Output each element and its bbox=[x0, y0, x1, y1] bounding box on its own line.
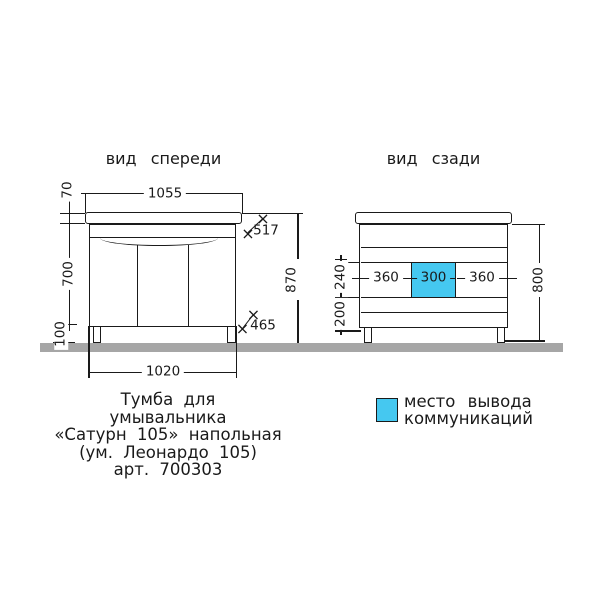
front-door-seam-right bbox=[188, 245, 189, 327]
dim-outlet-upper: 240 bbox=[334, 261, 348, 293]
caption-line5: арт. 700303 bbox=[35, 461, 301, 479]
legend-swatch bbox=[376, 398, 398, 422]
extension-line bbox=[242, 193, 243, 213]
back-countertop bbox=[355, 212, 512, 224]
back-panel-line bbox=[361, 247, 507, 248]
extension-line bbox=[242, 213, 303, 214]
front-view-title: вид спереди bbox=[85, 149, 242, 168]
tick-mark bbox=[335, 330, 361, 331]
dimension-line bbox=[297, 300, 298, 343]
dim-countertop-depth: 517 bbox=[253, 224, 279, 238]
caption-line4: (ум. Леонардо 105) bbox=[35, 444, 301, 462]
tick-mark bbox=[60, 223, 85, 224]
legend-label-line2: коммуникаций bbox=[404, 411, 533, 428]
front-countertop bbox=[85, 212, 242, 224]
dim-outlet-lower: 200 bbox=[334, 298, 348, 330]
x-mark-icon: × bbox=[236, 321, 249, 337]
product-caption: Тумба для умывальника «Сатурн 105» напол… bbox=[35, 391, 301, 479]
dim-leg-height: 100 bbox=[54, 318, 68, 350]
dim-left-offset: 360 bbox=[369, 272, 403, 286]
dimension-line bbox=[539, 224, 540, 263]
extension-line bbox=[88, 326, 89, 378]
dim-total-height: 870 bbox=[285, 264, 299, 296]
front-leg-right bbox=[227, 326, 236, 343]
caption-line3: «Сатурн 105» напольная bbox=[35, 426, 301, 444]
caption-line1: Тумба для bbox=[35, 391, 301, 409]
back-panel-line bbox=[361, 312, 507, 313]
dim-back-height: 800 bbox=[532, 264, 546, 296]
back-leg-left bbox=[364, 327, 373, 343]
technical-drawing: вид спереди 1055 70 700 100 870 × × 517 … bbox=[0, 0, 600, 600]
floor-band bbox=[40, 343, 563, 353]
tick-mark bbox=[335, 259, 347, 260]
dim-outlet-width: 300 bbox=[417, 272, 451, 286]
front-door-seam-left bbox=[137, 245, 138, 327]
back-view-title: вид сзади bbox=[355, 149, 512, 168]
dimension-line bbox=[539, 297, 540, 341]
dim-body-depth: 465 bbox=[250, 319, 276, 333]
dim-countertop-thickness: 70 bbox=[61, 178, 75, 201]
extension-line bbox=[512, 224, 545, 225]
dim-body-height: 700 bbox=[62, 258, 76, 290]
tick-mark bbox=[60, 213, 85, 214]
dim-countertop-width: 1055 bbox=[144, 187, 186, 201]
front-leg-left bbox=[93, 326, 102, 343]
dim-right-offset: 360 bbox=[465, 272, 499, 286]
back-leg-right bbox=[497, 327, 506, 343]
dim-body-width: 1020 bbox=[142, 365, 184, 379]
extension-line bbox=[85, 193, 86, 213]
caption-line2: умывальника bbox=[35, 409, 301, 427]
legend-label: место вывода коммуникаций bbox=[404, 394, 533, 427]
dimension-line bbox=[297, 213, 298, 259]
